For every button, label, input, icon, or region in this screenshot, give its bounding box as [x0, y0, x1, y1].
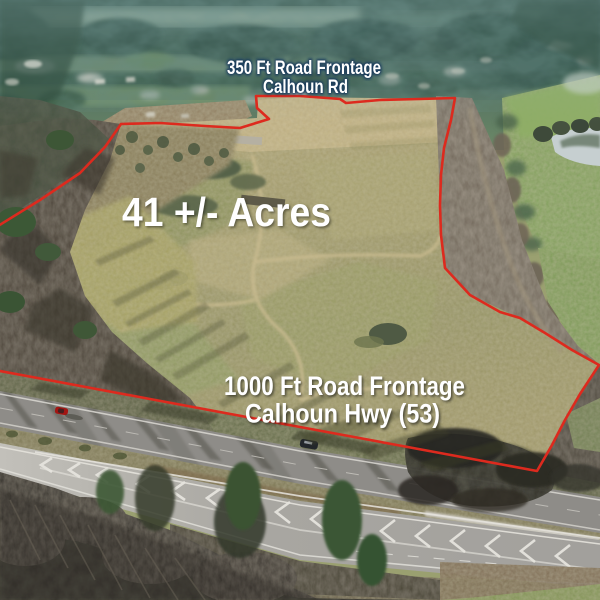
- svg-text:350 Ft Road Frontage: 350 Ft Road Frontage: [227, 58, 381, 79]
- svg-text:Calhoun Hwy (53): Calhoun Hwy (53): [245, 399, 440, 429]
- svg-text:Calhoun Rd: Calhoun Rd: [263, 77, 348, 98]
- svg-text:1000 Ft Road Frontage: 1000 Ft Road Frontage: [224, 371, 465, 401]
- svg-text:41 +/- Acres: 41 +/- Acres: [122, 189, 331, 235]
